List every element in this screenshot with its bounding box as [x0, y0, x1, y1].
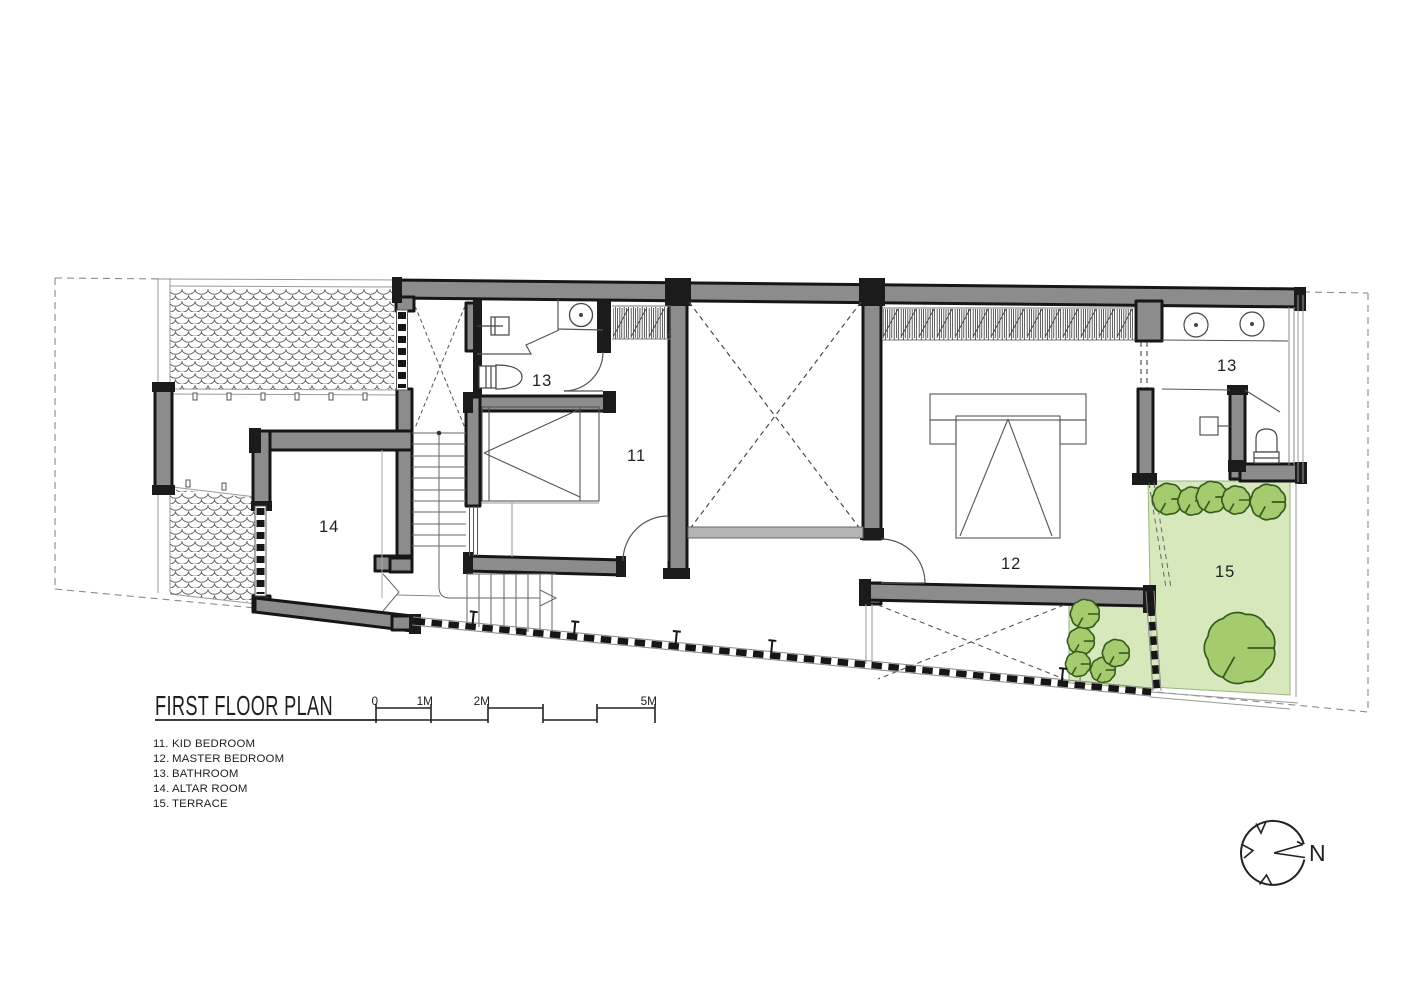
svg-text:BATHROOM: BATHROOM [172, 768, 239, 780]
svg-text:15.: 15. [153, 798, 169, 810]
svg-text:0: 0 [371, 694, 378, 708]
svg-text:TERRACE: TERRACE [172, 798, 228, 810]
svg-text:5M: 5M [641, 694, 657, 708]
svg-text:FIRST FLOOR PLAN: FIRST FLOOR PLAN [155, 690, 333, 721]
svg-text:11: 11 [627, 447, 646, 465]
svg-text:14: 14 [319, 518, 339, 536]
svg-text:13: 13 [532, 372, 552, 390]
svg-text:2M: 2M [474, 694, 490, 708]
svg-text:15: 15 [1215, 563, 1235, 581]
svg-text:N: N [1309, 840, 1326, 866]
svg-text:1M: 1M [417, 694, 433, 708]
svg-text:13.: 13. [153, 768, 169, 780]
svg-text:MASTER BEDROOM: MASTER BEDROOM [172, 753, 284, 765]
svg-text:13: 13 [1217, 357, 1237, 375]
svg-text:14.: 14. [153, 783, 169, 795]
svg-text:12: 12 [1001, 555, 1021, 573]
svg-text:11.: 11. [153, 738, 169, 750]
svg-text:KID BEDROOM: KID BEDROOM [172, 738, 255, 750]
svg-text:ALTAR ROOM: ALTAR ROOM [172, 783, 248, 795]
svg-text:12.: 12. [153, 753, 169, 765]
